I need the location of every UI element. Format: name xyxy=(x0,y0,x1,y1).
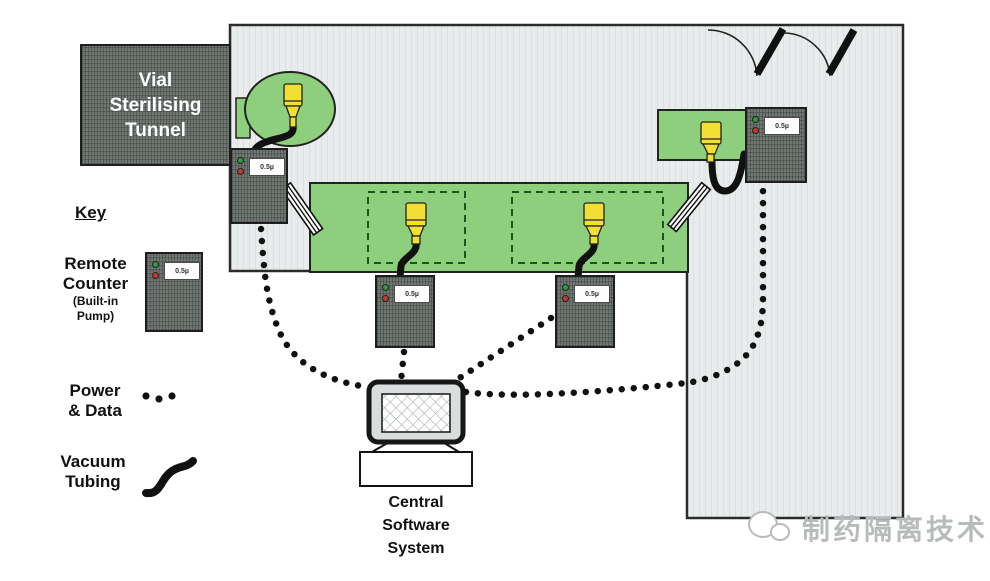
counter-display: 0.5µ xyxy=(164,262,200,280)
central-software-system-label: Central Software System xyxy=(360,491,472,560)
green-led-icon xyxy=(382,284,389,291)
power-data-line-counter-2 xyxy=(455,318,551,381)
green-led-icon xyxy=(152,261,159,268)
remote-counter-capping: 0.5µ xyxy=(745,107,807,183)
key-remote-counter-icon: 0.5µ xyxy=(145,252,203,332)
watermark-text: 制药隔离技术 xyxy=(802,508,988,548)
counter-display: 0.5µ xyxy=(574,285,610,303)
red-led-icon xyxy=(382,295,389,302)
counter-display: 0.5µ xyxy=(249,158,285,176)
filling-line-conveyor xyxy=(310,183,688,272)
watermark: 制药隔离技术 xyxy=(748,508,988,548)
counter-display: 0.5µ xyxy=(394,285,430,303)
green-led-icon xyxy=(237,157,244,164)
vacuum-tubing-icon xyxy=(146,461,193,493)
remote-counter-tunnel: 0.5µ xyxy=(230,148,288,224)
key-remote-counter-label: Remote Counter xyxy=(38,254,153,294)
green-led-icon xyxy=(752,116,759,123)
red-led-icon xyxy=(152,272,159,279)
tunnel-label: Vial Sterilising Tunnel xyxy=(110,68,202,143)
green-led-icon xyxy=(562,284,569,291)
key-power-data-label: Power & Data xyxy=(45,381,145,421)
red-led-icon xyxy=(562,295,569,302)
chat-bubbles-icon xyxy=(748,508,794,548)
diagram-canvas: Vial Sterilising Tunnel 0.5µ 0.5µ 0.5µ 0… xyxy=(0,0,990,581)
power-data-dots-icon xyxy=(142,392,175,402)
red-led-icon xyxy=(237,168,244,175)
power-data-line-counter-1 xyxy=(401,352,404,381)
remote-counter-line-1: 0.5µ xyxy=(375,275,435,348)
counter-display: 0.5µ xyxy=(764,117,800,135)
key-remote-counter-sublabel: (Built-in Pump) xyxy=(38,294,153,324)
key-vacuum-tubing-label: Vacuum Tubing xyxy=(38,452,148,492)
computer-screen xyxy=(382,394,450,432)
computer-body xyxy=(360,382,472,486)
key-title: Key xyxy=(75,203,106,223)
red-led-icon xyxy=(752,127,759,134)
remote-counter-line-2: 0.5µ xyxy=(555,275,615,348)
vial-sterilising-tunnel: Vial Sterilising Tunnel xyxy=(80,44,231,166)
